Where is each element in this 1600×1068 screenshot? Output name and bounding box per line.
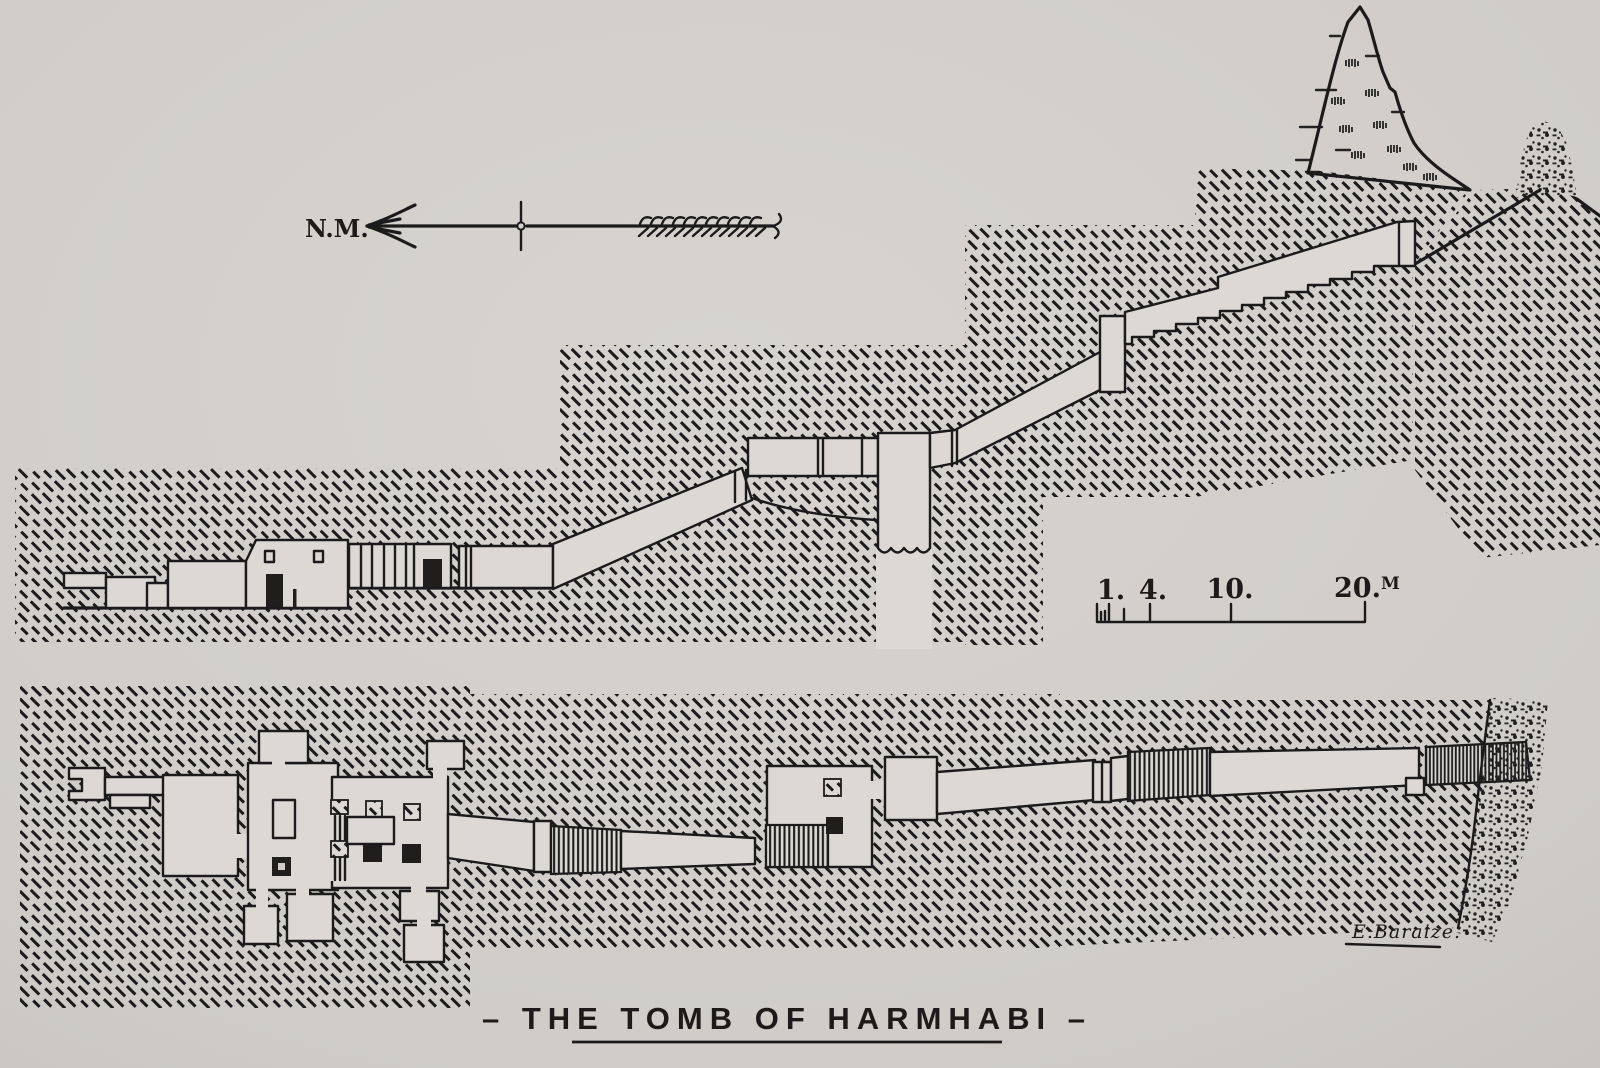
rock-mass <box>470 694 1060 948</box>
scale-label: 4. <box>1139 575 1167 606</box>
section-chamber <box>64 573 106 588</box>
pilaster <box>331 841 348 857</box>
staircase <box>766 825 828 867</box>
doorway <box>411 883 426 895</box>
well-shaft-plan <box>826 817 843 834</box>
doorway <box>272 757 285 769</box>
pillar <box>402 844 421 863</box>
pilaster <box>331 800 348 814</box>
pit-emplacement <box>273 800 295 838</box>
door-jamb <box>534 821 551 872</box>
scanned-page: N.M. 1. 4. 10. 20.M <box>0 0 1600 1068</box>
section-hall <box>246 540 348 608</box>
well-shaft <box>878 433 930 553</box>
wall-niche <box>265 551 274 562</box>
plan-antechamber <box>163 775 238 876</box>
plan-annex <box>427 741 464 769</box>
plan-corridor <box>621 831 755 869</box>
plan-annex <box>404 925 444 962</box>
staircase <box>1128 748 1210 801</box>
pillar <box>404 804 420 820</box>
doorway-dark <box>266 574 283 607</box>
well-mouth <box>824 779 841 796</box>
rock-mass <box>1415 188 1600 558</box>
scale-label: 10. <box>1207 574 1254 605</box>
scale-end-value: 20. <box>1334 573 1381 604</box>
signature-text: E.Baraize. <box>1351 921 1461 943</box>
section-chamber <box>168 561 246 608</box>
plan-annex <box>244 906 278 944</box>
plan-corridor <box>1111 756 1128 801</box>
doorway <box>417 916 431 928</box>
doorway <box>296 885 309 898</box>
plan-recess <box>110 795 150 808</box>
section-passage <box>147 583 168 608</box>
scale-label: 1. <box>1097 575 1125 606</box>
paper-gap <box>876 549 932 649</box>
staircase <box>551 826 621 874</box>
title-text: – THE TOMB OF HARMHABI – <box>482 1001 1092 1036</box>
doorway-dark <box>423 559 442 587</box>
pillar <box>363 843 382 862</box>
plan-corridor <box>105 777 167 795</box>
well-corridor <box>748 438 878 476</box>
scale-unit: M <box>1381 574 1400 594</box>
doorway <box>433 765 447 779</box>
section-corridor <box>459 546 553 588</box>
pillar <box>366 801 382 817</box>
plan-annex <box>287 894 333 941</box>
shaft-pit-center <box>278 863 285 870</box>
floor-slit <box>293 589 297 607</box>
sarcophagus-outline <box>347 817 394 844</box>
doorway <box>256 886 268 910</box>
arrow-pivot <box>517 222 524 229</box>
north-label: N.M. <box>305 214 369 243</box>
wall-niche <box>314 551 323 562</box>
door-jamb <box>1406 778 1424 795</box>
tomb-of-harmhabi-figure: N.M. 1. 4. 10. 20.M <box>0 0 1600 1068</box>
plan-antechamber <box>885 757 937 820</box>
rock-mass <box>1060 700 1492 946</box>
stair-landing <box>1100 316 1125 392</box>
figure-title: – THE TOMB OF HARMHABI – <box>482 1001 1092 1042</box>
